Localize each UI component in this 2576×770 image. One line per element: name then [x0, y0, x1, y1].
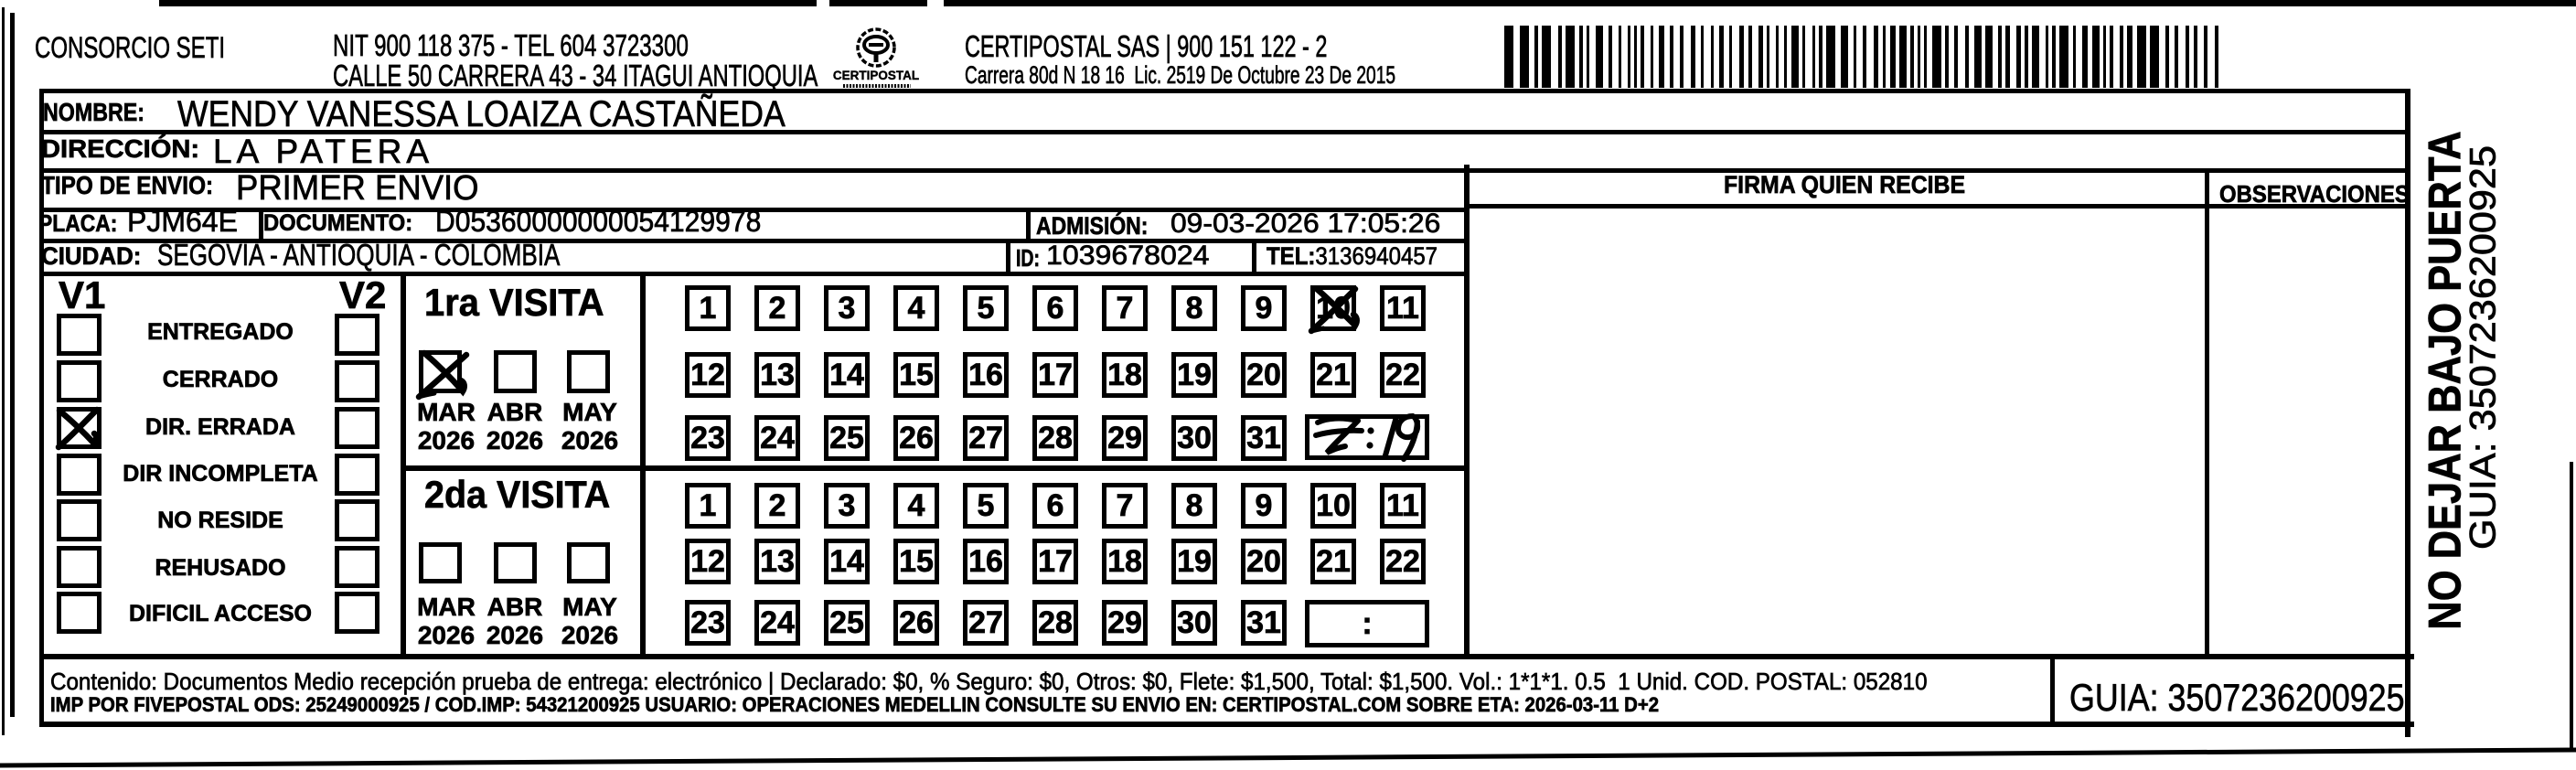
- svg-text:CERTIPOSTAL: CERTIPOSTAL: [833, 69, 919, 82]
